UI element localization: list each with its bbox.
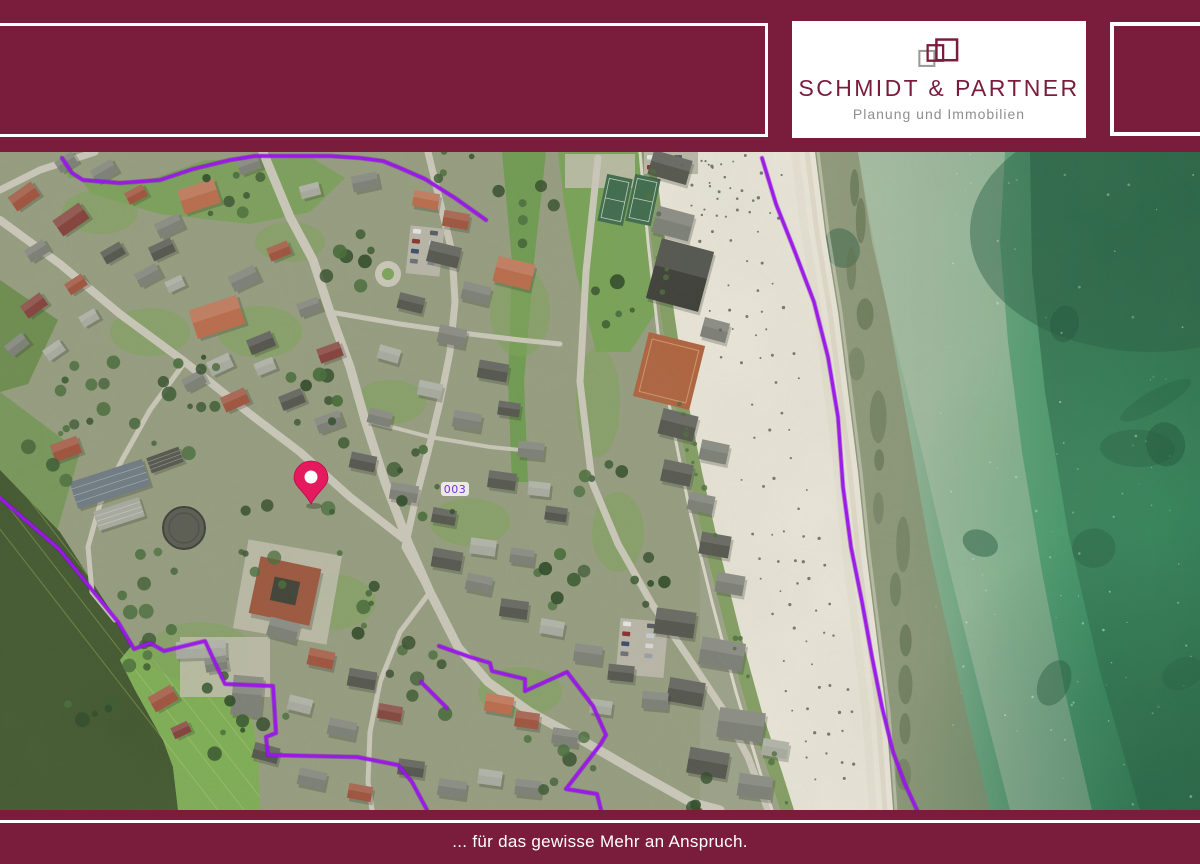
parcel-label: 003 xyxy=(441,482,469,496)
header-banner: SCHMIDT & PARTNER Planung und Immobilien xyxy=(0,0,1200,152)
header-right-frame xyxy=(1110,22,1200,136)
header-left-frame xyxy=(0,23,768,137)
footer-bar: ... für das gewisse Mehr an Anspruch. xyxy=(0,810,1200,864)
aerial-map: 003 xyxy=(0,152,1200,810)
aerial-map-canvas: 003 xyxy=(0,152,1200,810)
logo-box: SCHMIDT & PARTNER Planung und Immobilien xyxy=(792,21,1086,138)
logo-title: SCHMIDT & PARTNER xyxy=(798,75,1079,102)
svg-text:003: 003 xyxy=(444,483,467,496)
footer-slogan: ... für das gewisse Mehr an Anspruch. xyxy=(0,832,1200,852)
logo-subtitle: Planung und Immobilien xyxy=(853,106,1025,122)
logo-icon xyxy=(918,38,960,69)
footer-divider xyxy=(0,820,1200,823)
flyer-page: SCHMIDT & PARTNER Planung und Immobilien… xyxy=(0,0,1200,864)
